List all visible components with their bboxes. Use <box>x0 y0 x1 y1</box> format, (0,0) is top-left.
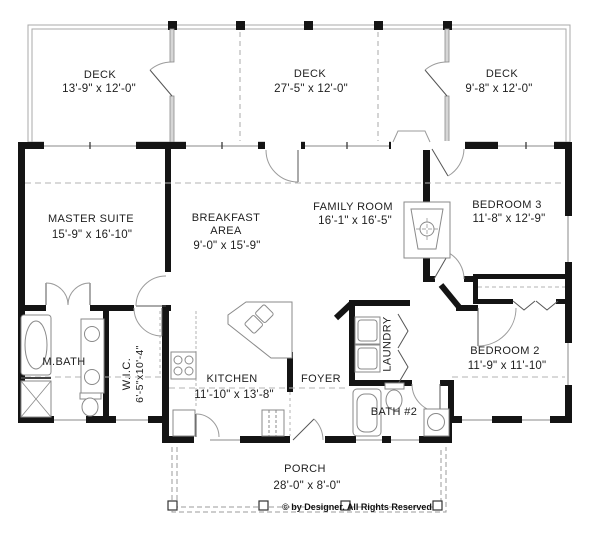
bedroom-2-label: BEDROOM 2 <box>470 345 540 357</box>
washer <box>355 317 380 344</box>
bath-2-label: BATH #2 <box>371 406 418 418</box>
deck-right-dims: 9'-8" x 12'-0" <box>465 83 532 95</box>
deck-right-label: DECK <box>486 68 518 80</box>
refrigerator <box>173 410 195 436</box>
bedroom-3-label: BEDROOM 3 <box>472 199 542 211</box>
bedroom-2-dims: 11'-9" x 11'-10" <box>468 360 547 372</box>
shower <box>21 381 51 417</box>
kitchen-label: KITCHEN <box>206 373 257 385</box>
deck-left-label: DECK <box>84 69 116 81</box>
master-bath-label: M.BATH <box>42 356 85 368</box>
laundry-label: LAUNDRY <box>382 316 395 371</box>
deck-middle-dims: 27'-5" x 12'-0" <box>274 83 348 95</box>
floor-plan: DECK 13'-9" x 12'-0" DECK 27'-5" x 12'-0… <box>0 0 600 537</box>
kitchen-dims: 11'-10" x 13'-8" <box>194 389 273 401</box>
breakfast-area-label: BREAKFAST <box>192 212 260 224</box>
kitchen-counter <box>228 302 292 358</box>
deck-middle-label: DECK <box>294 68 326 80</box>
range <box>171 352 196 379</box>
porch-dims: 28'-0" x 8'-0" <box>273 480 340 492</box>
family-room-dims: 16'-1" x 16'-5" <box>318 215 392 227</box>
laundry-fixtures <box>355 317 380 372</box>
kitchen-fixtures <box>171 302 292 436</box>
wic-dims: 6'-5"x10'-4" <box>134 345 147 403</box>
family-room-label: FAMILY ROOM <box>313 201 393 213</box>
foyer-label: FOYER <box>301 373 341 385</box>
door-swings <box>46 131 516 440</box>
wic-label-group: W.I.C. 6'-5"x10'-4" <box>121 345 147 403</box>
fireplace <box>404 202 450 258</box>
master-suite-dims: 15'-9" x 16'-10" <box>52 229 132 241</box>
porch-label: PORCH <box>284 463 326 475</box>
breakfast-area-label2: AREA <box>210 225 242 237</box>
bath2-sink <box>424 409 449 436</box>
copyright-text: © by Designer. All Rights Reserved <box>282 502 432 512</box>
master-suite-label: MASTER SUITE <box>48 213 134 225</box>
master-bath-toilet <box>80 393 101 416</box>
wic-label: W.I.C. <box>121 345 134 403</box>
deck-left-dims: 13'-9" x 12'-0" <box>62 83 136 95</box>
dryer <box>355 345 380 372</box>
bedroom-3-dims: 11'-8" x 12'-9" <box>473 213 546 225</box>
breakfast-area-dims: 9'-0" x 15'-9" <box>193 240 260 252</box>
pantry-cabinet <box>262 410 284 436</box>
